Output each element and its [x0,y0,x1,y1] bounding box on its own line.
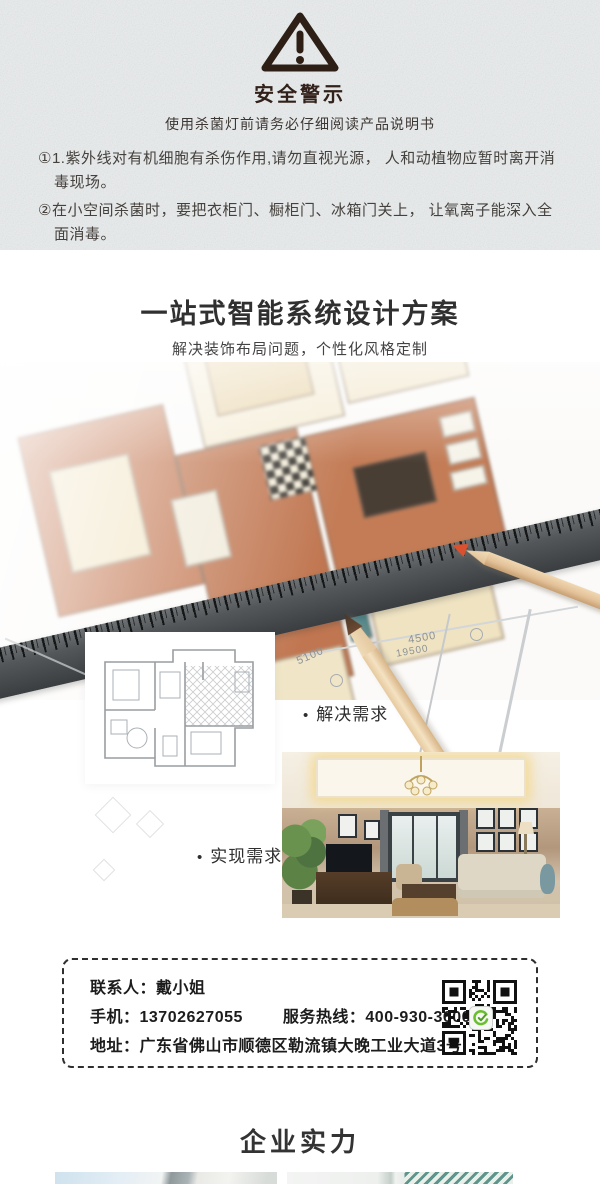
photo-part [392,898,458,916]
chandelier [400,756,442,800]
design-collage: 5100 4500 19500 [0,362,600,932]
qr-code [442,980,520,1056]
green-c-icon [472,1009,490,1027]
photo-part [524,834,527,854]
photo-part [540,864,555,894]
design-section-title: 一站式智能系统设计方案 [0,292,600,331]
building-photo-partial [287,1172,513,1184]
photo-part [458,854,546,898]
contact-phone: 手机：13702627055 [90,1009,243,1026]
contact-box: 联系人：戴小姐 手机：13702627055服务热线：400-930-3600 … [62,958,538,1068]
sketch-shape [136,810,164,838]
label-solve-need: •解决需求 [303,700,388,725]
photo-part [364,820,380,840]
bullet-icon: • [197,849,203,866]
warning-item: ①1.紫外线对有机细胞有杀伤作用,请勿直视光源， 人和动植物应暂时离开消毒现场。 [38,147,566,196]
safety-subtitle: 使用杀菌灯前请务必仔细阅读产品说明书 [0,114,600,134]
bullet-icon: • [303,707,309,724]
photo-part [326,844,372,873]
warning-list: ①1.紫外线对有机细胞有杀伤作用,请勿直视光源， 人和动植物应暂时离开消毒现场。… [38,147,566,247]
design-section-subtitle: 解决装饰布局问题，个性化风格定制 [0,338,600,359]
sketch-shape [95,797,132,834]
warning-triangle-icon [259,10,341,74]
photo-part [316,872,392,905]
contact-address: 地址：广东省佛山市顺德区勒流镇大晚工业大道3号 [90,1032,424,1061]
contact-phone-row: 手机：13702627055服务热线：400-930-3600 [90,1003,424,1032]
sketch-shape [93,859,116,882]
floor-plan-sketch [85,632,275,784]
bottom-strip [0,1172,600,1184]
contact-person: 联系人：戴小姐 [90,974,424,1003]
warning-item: ②在小空间杀菌时，要把衣柜门、橱柜门、冰箱门关上， 让氧离子能深入全面消毒。 [38,199,566,248]
strength-section-title: 企业实力 [0,1122,600,1159]
photo-part [518,822,534,834]
qr-center-logo [469,1006,493,1030]
safety-title: 安全警示 [0,78,600,107]
dimension-marker [330,674,343,687]
photo-part [338,814,357,838]
building-photo-partial [55,1172,277,1184]
living-room-photo [282,752,560,918]
safety-warning-section: 安全警示 使用杀菌灯前请务必仔细阅读产品说明书 ①1.紫外线对有机细胞有杀伤作用… [0,0,600,250]
label-realize-need: •实现需求 [197,842,282,867]
product-detail-page: 安全警示 使用杀菌灯前请务必仔细阅读产品说明书 ①1.紫外线对有机细胞有杀伤作用… [0,0,600,1184]
